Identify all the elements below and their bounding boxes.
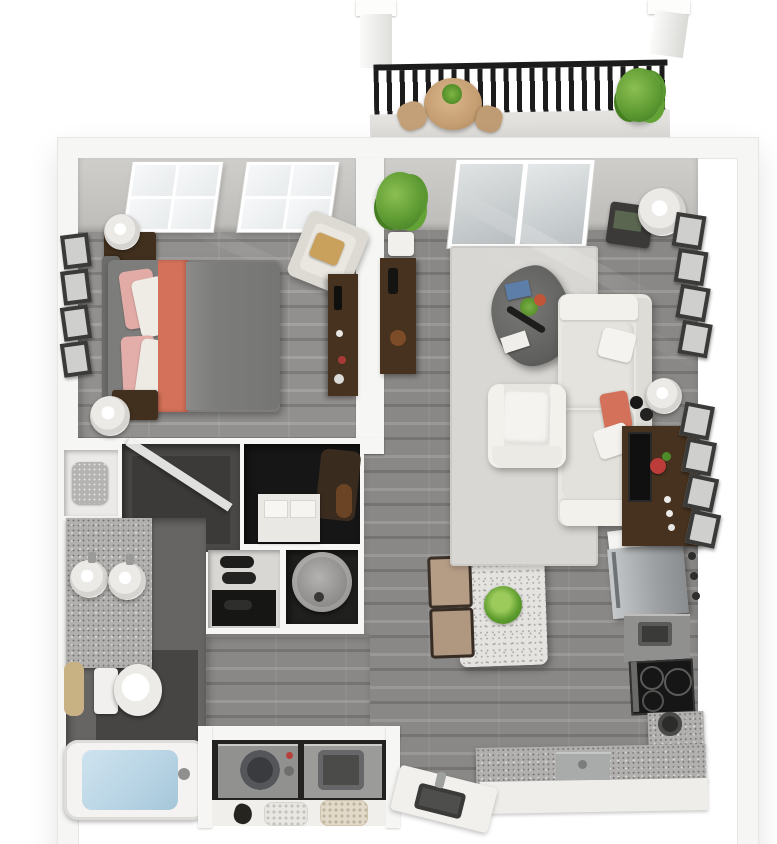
hallway-floor	[205, 634, 370, 738]
bathtub-water	[82, 750, 178, 810]
dresser-bottle	[334, 286, 342, 310]
shoes-pair-1	[220, 556, 254, 568]
laundry-wall-top	[198, 726, 400, 740]
shoes-pair-2	[222, 572, 256, 584]
burner-3	[642, 690, 664, 712]
window-pane	[175, 165, 220, 196]
dishwasher-dial	[578, 760, 587, 769]
candle-1	[664, 496, 671, 503]
dining-centerpiece-plant	[484, 586, 522, 624]
washer-dial	[284, 766, 294, 776]
nightstand-lamp	[90, 396, 130, 436]
toilet-bowl	[114, 664, 162, 716]
balcony	[340, 0, 720, 145]
wall-frame	[60, 304, 92, 342]
balcony-plant	[616, 68, 662, 122]
living-console-table	[380, 258, 416, 374]
bathtub-faucet	[178, 768, 190, 780]
wall-frame	[60, 232, 92, 269]
storage-box-1	[264, 500, 288, 518]
cabinet-knob-1	[688, 552, 696, 560]
console-vase	[390, 330, 406, 346]
wall-frame	[674, 248, 709, 286]
washer-indicator	[286, 752, 293, 759]
bath-mat	[64, 662, 84, 716]
candle-3	[668, 524, 675, 531]
corner-table-jug	[104, 214, 140, 250]
table-lamp-bottom	[646, 378, 682, 414]
candle-2	[666, 510, 673, 517]
patio-table-plant	[442, 84, 462, 104]
cabinet-knob-2	[690, 572, 698, 580]
shoes-pair-3	[224, 600, 252, 610]
dining-chair-2	[429, 607, 475, 659]
burner-2	[664, 668, 692, 696]
bed-duvet	[186, 262, 280, 410]
window-pane	[245, 165, 291, 196]
speaker-decor-2	[640, 408, 653, 421]
closet-garment	[336, 484, 352, 518]
vanity-faucet-1	[88, 552, 96, 563]
vanity-sink-2	[108, 562, 146, 600]
window-pane	[131, 165, 176, 196]
wall-frame	[672, 212, 707, 250]
water-heater-valve	[314, 592, 324, 602]
wall-frame	[60, 268, 92, 305]
window-pane	[241, 199, 287, 230]
bedroom-window-1	[123, 162, 223, 232]
laundry-wall-left	[198, 726, 212, 828]
dryer-door	[318, 750, 364, 790]
washer-door	[240, 750, 280, 790]
laundry-basket-2	[320, 800, 368, 826]
vanity-faucet-2	[126, 554, 134, 565]
floorplan-render	[0, 0, 777, 844]
window-pane	[170, 199, 215, 230]
oven-window	[638, 622, 672, 646]
balcony-post-left-shaft	[360, 14, 392, 68]
sofa-arm-top	[560, 294, 638, 320]
balcony-post-right-shaft	[649, 10, 689, 58]
sliding-glass-door	[447, 160, 594, 248]
window-pane	[290, 165, 336, 196]
folded-towel	[72, 462, 108, 504]
wall-frame	[681, 437, 717, 476]
wall-frame	[60, 340, 92, 378]
tv-panel	[628, 432, 652, 502]
dresser-decor-red	[338, 356, 346, 364]
wall-frame	[677, 320, 712, 359]
dresser-decor-white	[336, 330, 343, 337]
living-room-plant	[376, 172, 424, 230]
burner-1	[640, 666, 664, 690]
console-bottle	[388, 268, 398, 294]
corner-pot	[658, 712, 682, 736]
door-glass-pane	[452, 164, 523, 244]
counter-cabinet-front	[480, 778, 709, 814]
door-glass-pane	[519, 164, 590, 244]
armchair-back	[492, 446, 562, 468]
armchair-cushion	[503, 391, 551, 445]
laundry-basket-1	[264, 802, 308, 826]
cabinet-knob-3	[692, 592, 700, 600]
coffee-table-flowers	[534, 294, 546, 306]
water-heater	[292, 552, 352, 612]
wall-frame	[679, 401, 715, 440]
wall-frame	[675, 284, 710, 323]
storage-box-2	[290, 500, 316, 518]
dresser-candle	[334, 374, 344, 384]
living-plant-pot	[388, 232, 414, 256]
red-flower-leaf	[662, 452, 671, 461]
vanity-sink-1	[70, 560, 108, 598]
speaker-decor-1	[630, 396, 643, 409]
bed-coral-throw	[158, 260, 188, 412]
